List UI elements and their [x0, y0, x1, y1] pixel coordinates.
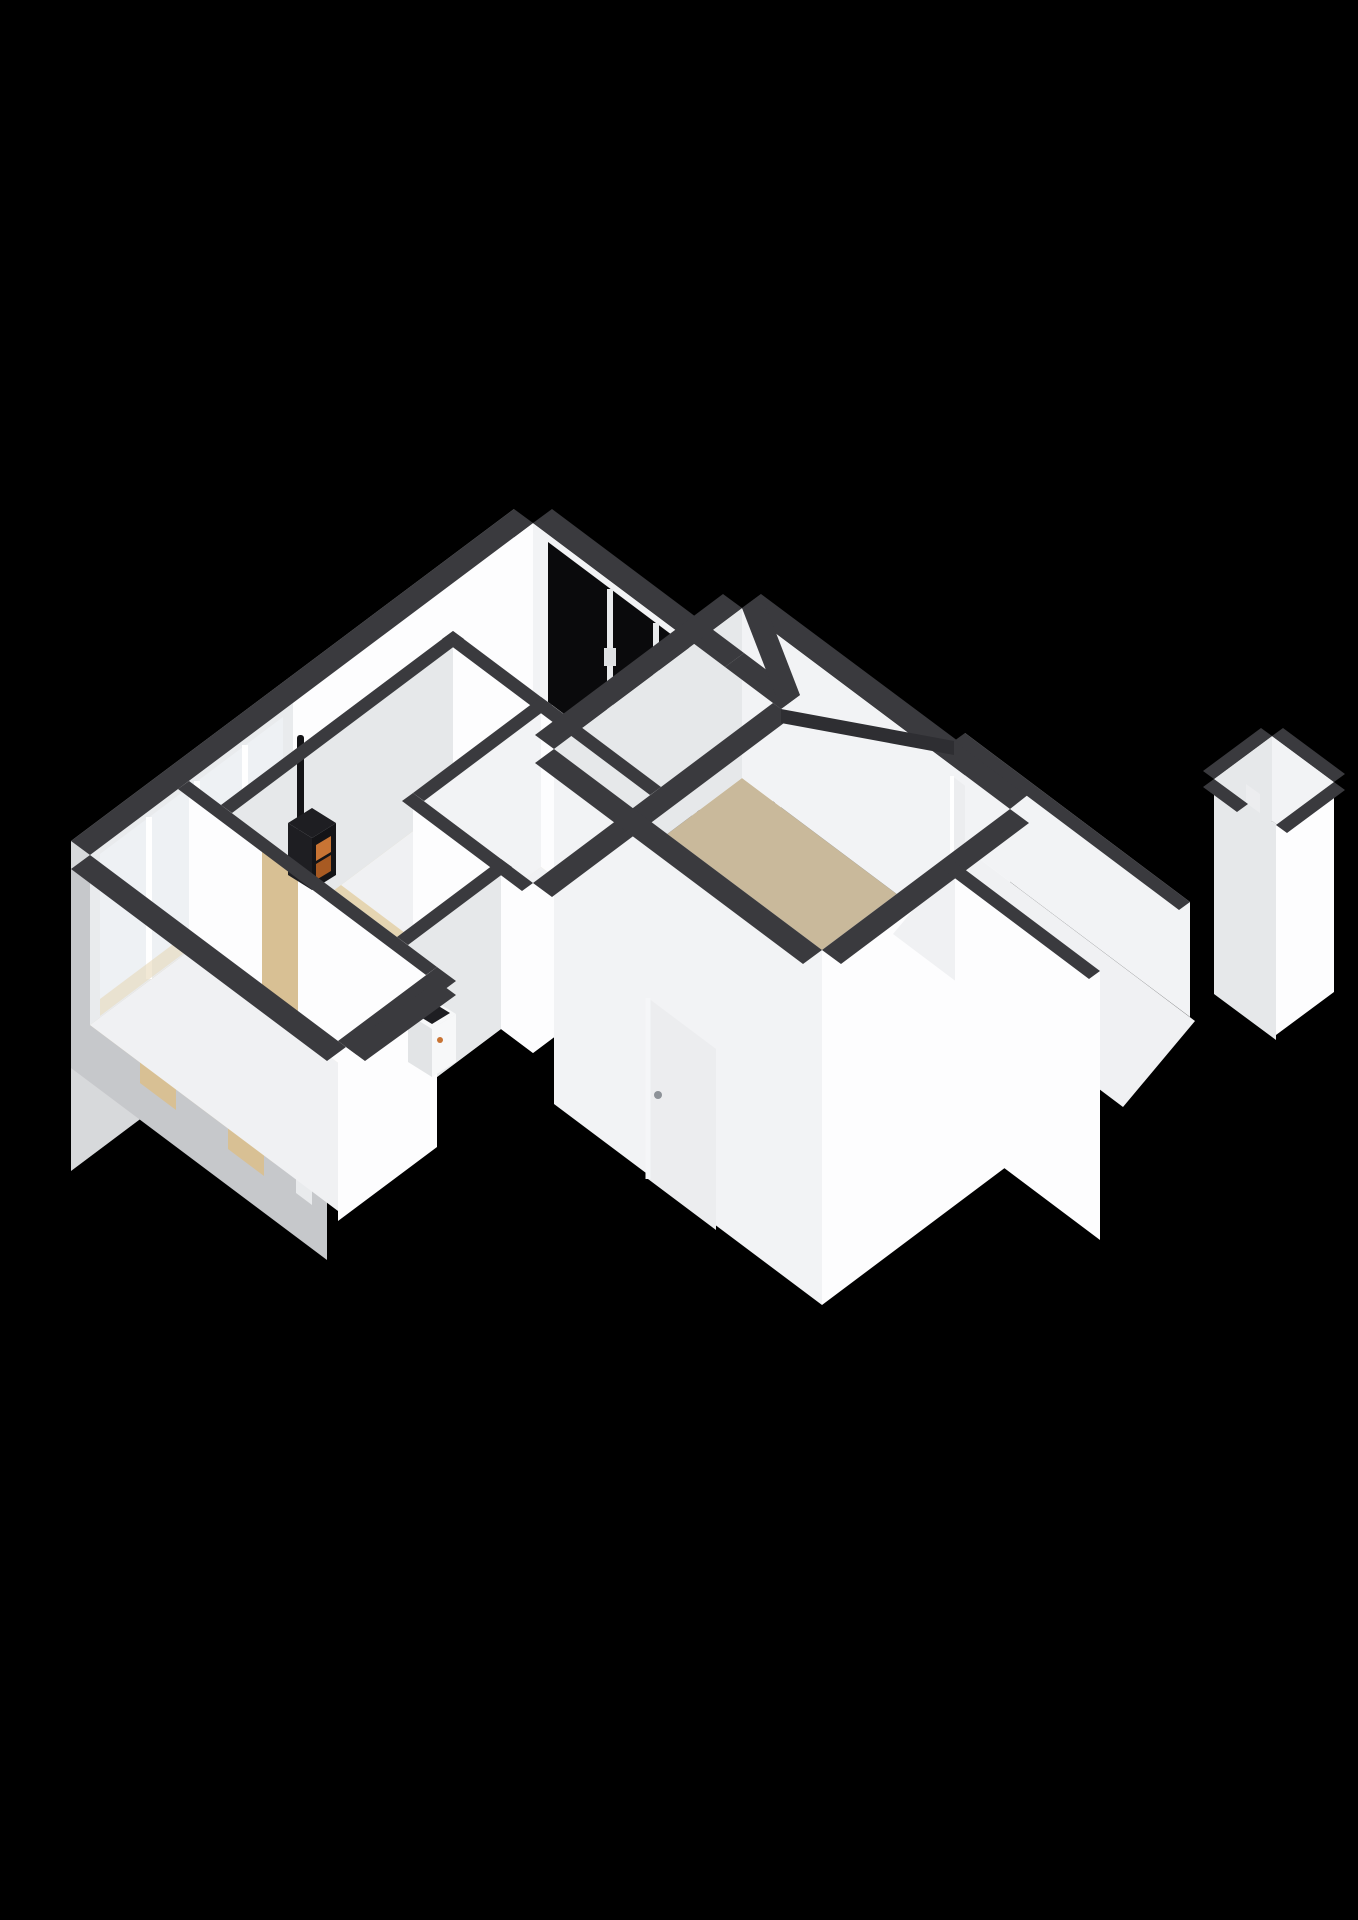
storage-sw-exterior-face: [1214, 779, 1276, 1040]
floorplan-stage: [0, 0, 1358, 1920]
window-handle: [604, 648, 616, 666]
floorplan-3d-render: [0, 0, 1358, 1920]
bedroom-exterior-door-handle: [654, 1091, 662, 1099]
washer-indicator: [437, 1037, 443, 1043]
